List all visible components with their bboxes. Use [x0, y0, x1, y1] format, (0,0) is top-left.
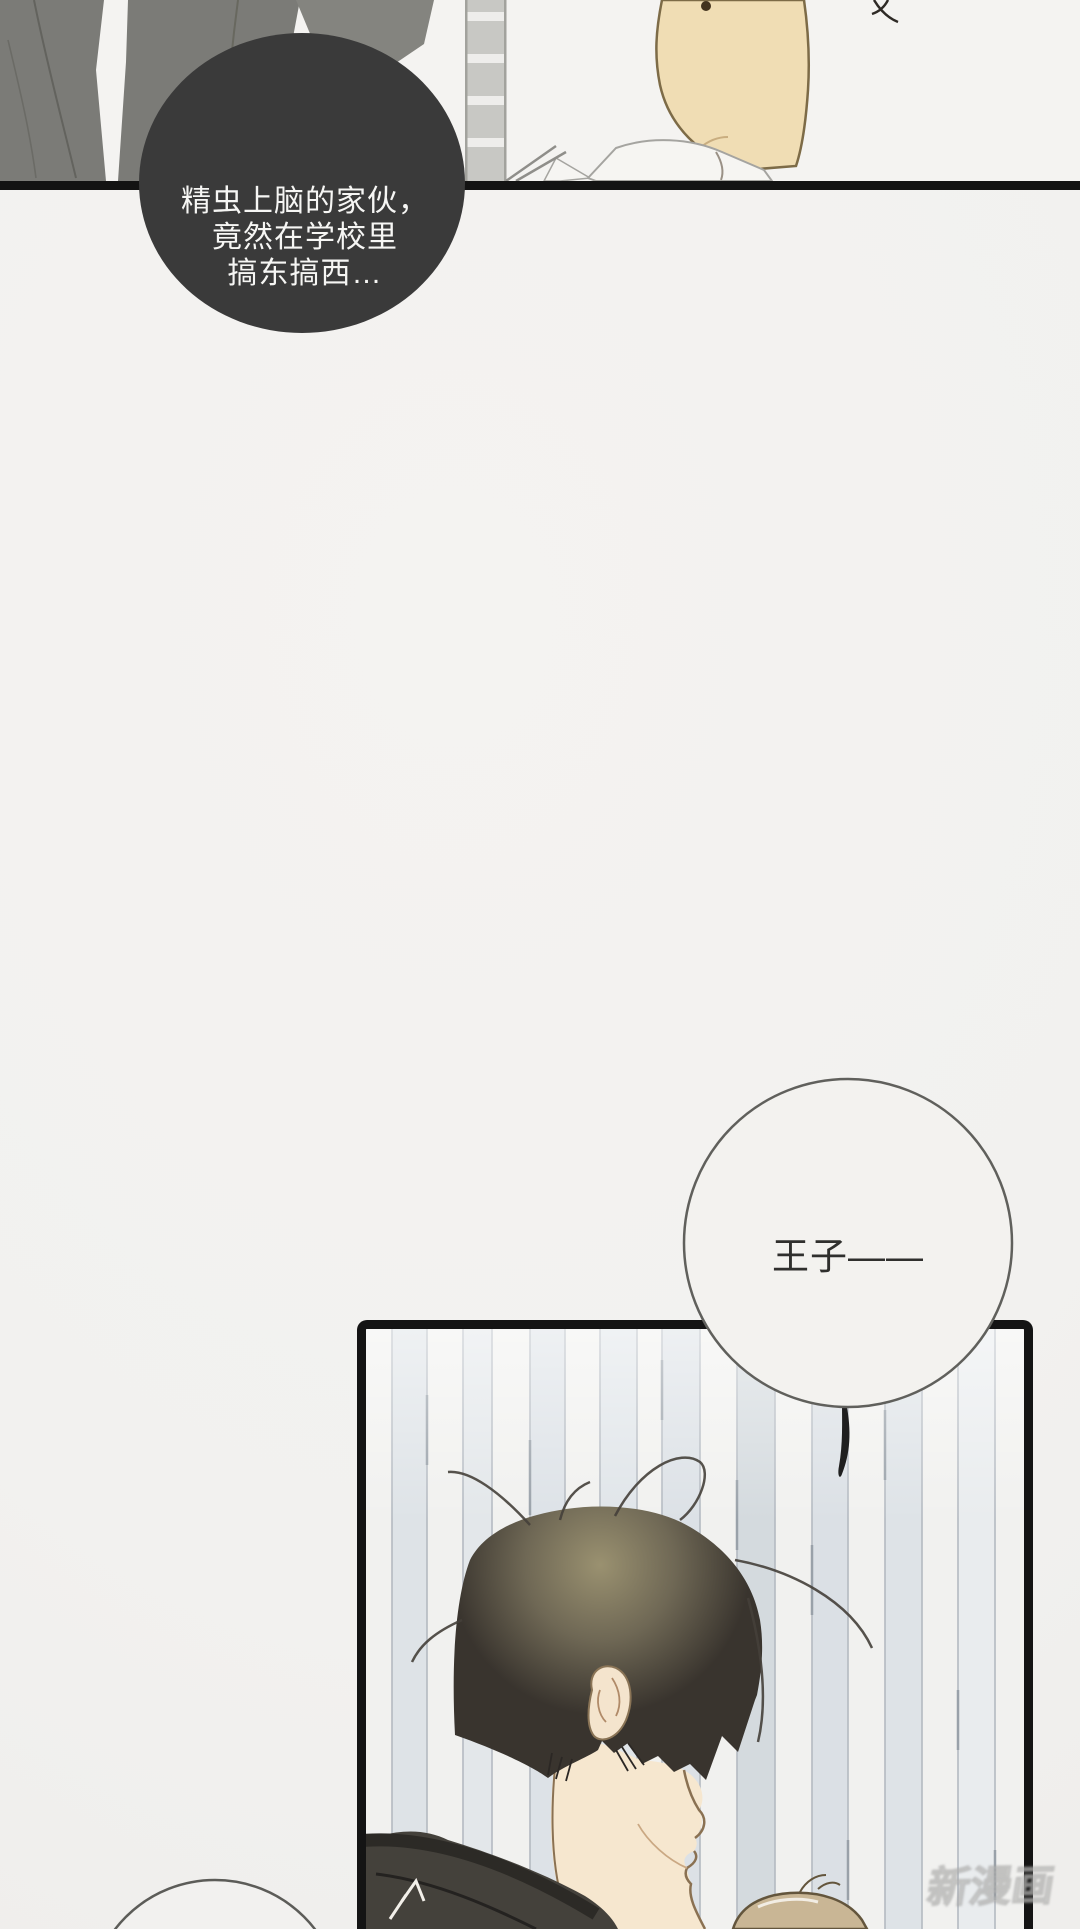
site-watermark: 新漫画 [881, 1856, 1080, 1918]
ladder-shelf [465, 0, 507, 181]
circle-bubble-text: 王子—— [698, 1237, 998, 1277]
comic-page: 精虫上脑的家伙， 竟然在学校里 搞东搞西… [0, 0, 1080, 1929]
black-bubble-text: 精虫上脑的家伙， 竟然在学校里 搞东搞西… [150, 184, 460, 292]
black-bubble-line-2: 竟然在学校里 [150, 220, 460, 256]
black-bubble-line-1: 精虫上脑的家伙， [150, 184, 460, 220]
bottom-left-speech-bubble [89, 1880, 341, 1929]
main-panel [357, 1320, 1033, 1929]
main-panel-art [366, 1329, 1024, 1929]
arm-mole [701, 1, 711, 11]
top-panel-art [0, 0, 1080, 345]
black-bubble-line-3: 搞东搞西… [150, 256, 460, 292]
